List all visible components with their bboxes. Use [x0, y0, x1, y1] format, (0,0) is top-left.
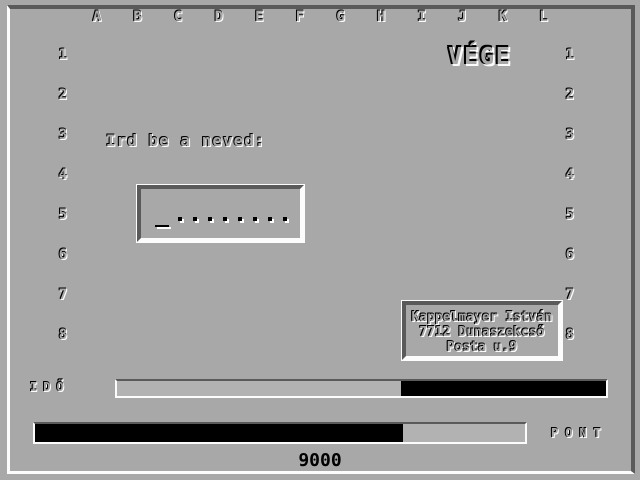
- name-char-slot: [193, 217, 197, 221]
- column-label-C: C: [170, 10, 186, 24]
- row-label-7: 7: [55, 288, 71, 302]
- row-label-6: 6: [562, 248, 578, 262]
- column-label-H: H: [373, 10, 389, 24]
- row-label-8: 8: [562, 328, 578, 342]
- score-bar-fill: [35, 424, 403, 442]
- score-bar: [33, 422, 527, 444]
- name-entry-prompt: Ird be a neved:: [106, 131, 266, 150]
- column-label-G: G: [333, 10, 349, 24]
- time-bar-label: IDŐ: [30, 380, 70, 394]
- column-label-F: F: [292, 10, 308, 24]
- row-label-1: 1: [562, 48, 578, 62]
- row-label-5: 5: [562, 208, 578, 222]
- column-label-I: I: [414, 10, 430, 24]
- column-label-J: J: [454, 10, 470, 24]
- author-city: 7712 Dunaszekcső: [406, 325, 558, 340]
- column-label-D: D: [211, 10, 227, 24]
- row-label-7: 7: [562, 288, 578, 302]
- name-char-slot: [178, 217, 182, 221]
- score-value: 9000: [0, 450, 640, 471]
- author-name: Kappelmayer István: [406, 310, 558, 325]
- author-street: Posta u.9: [406, 340, 558, 355]
- row-label-6: 6: [55, 248, 71, 262]
- time-bar: [115, 379, 608, 398]
- name-char-slot: [238, 217, 242, 221]
- row-label-2: 2: [55, 88, 71, 102]
- column-label-K: K: [495, 10, 511, 24]
- screen-frame: [7, 5, 635, 474]
- name-char-slot: [268, 217, 272, 221]
- row-label-3: 3: [55, 128, 71, 142]
- column-label-L: L: [536, 10, 552, 24]
- column-label-E: E: [251, 10, 267, 24]
- row-label-2: 2: [562, 88, 578, 102]
- name-char-slots: [178, 217, 298, 225]
- name-char-slot: [223, 217, 227, 221]
- game-screen: ABCDEFGHIJKL 12345678 12345678 VÉGE Ird …: [0, 0, 640, 480]
- name-char-slot: [208, 217, 212, 221]
- score-bar-label: PONT: [551, 426, 608, 440]
- time-bar-fill: [401, 381, 606, 396]
- text-cursor: [155, 225, 169, 227]
- column-label-A: A: [89, 10, 105, 24]
- name-char-slot: [253, 217, 257, 221]
- column-label-B: B: [130, 10, 146, 24]
- name-char-slot: [283, 217, 287, 221]
- row-label-4: 4: [55, 168, 71, 182]
- row-label-4: 4: [562, 168, 578, 182]
- row-label-1: 1: [55, 48, 71, 62]
- game-over-title: VÉGE: [438, 44, 522, 70]
- row-label-3: 3: [562, 128, 578, 142]
- name-input-field[interactable]: [137, 185, 304, 242]
- author-address-box: Kappelmayer István 7712 Dunaszekcső Post…: [402, 301, 562, 360]
- row-label-8: 8: [55, 328, 71, 342]
- row-label-5: 5: [55, 208, 71, 222]
